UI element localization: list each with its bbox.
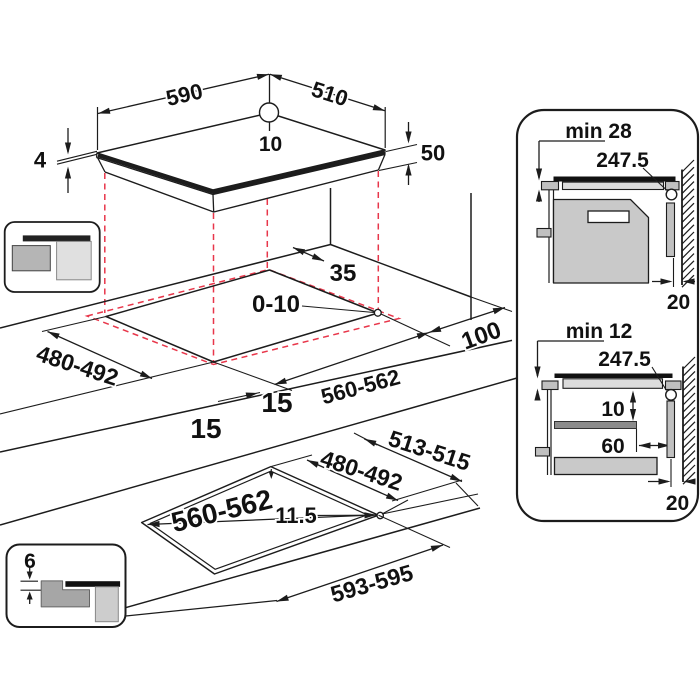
svg-text:247.5: 247.5: [596, 149, 649, 172]
svg-text:15: 15: [261, 387, 292, 418]
svg-text:10: 10: [601, 398, 624, 421]
svg-text:247.5: 247.5: [598, 348, 651, 371]
svg-text:20: 20: [667, 291, 690, 314]
svg-text:15: 15: [190, 413, 221, 444]
svg-text:50: 50: [421, 141, 445, 166]
svg-text:4: 4: [34, 148, 47, 173]
svg-text:0-10: 0-10: [252, 291, 300, 318]
svg-text:min 28: min 28: [565, 120, 632, 143]
svg-text:10: 10: [259, 133, 282, 156]
svg-text:35: 35: [330, 260, 357, 287]
svg-text:60: 60: [601, 435, 624, 458]
svg-text:min 12: min 12: [566, 320, 633, 343]
svg-text:11.5: 11.5: [275, 503, 317, 528]
svg-text:20: 20: [666, 492, 689, 515]
